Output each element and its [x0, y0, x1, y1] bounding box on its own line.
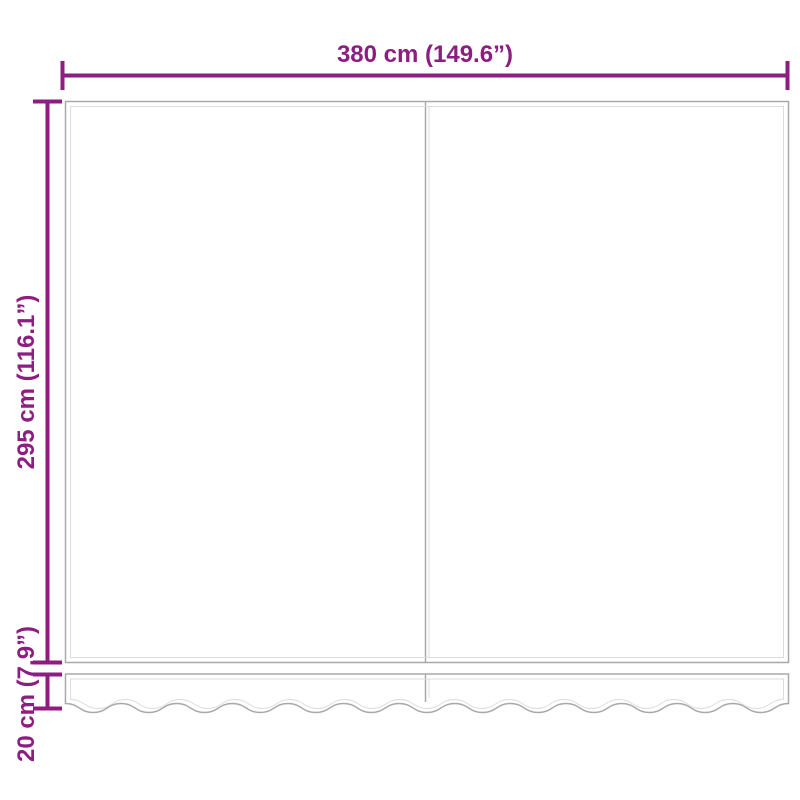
diagram-canvas: 380 cm (149.6”) 295 cm (116.1”) 20 cm (7… — [0, 0, 800, 800]
awning-fabric-dimension-diagram: 380 cm (149.6”) 295 cm (116.1”) 20 cm (7… — [0, 0, 800, 800]
fabric-panel — [66, 102, 789, 663]
valance-outline — [65, 674, 788, 713]
dimension-lines — [33, 61, 788, 709]
width-dimension-label: 380 cm (149.6”) — [337, 41, 513, 68]
fabric-panel-inner-stitch — [71, 107, 784, 658]
fabric-outlines-outer — [65, 102, 788, 713]
fabric-outlines-inner — [71, 107, 784, 709]
height-dimension-label: 295 cm (116.1”) — [13, 295, 40, 470]
dimension-labels: 380 cm (149.6”) 295 cm (116.1”) 20 cm (7… — [13, 41, 513, 762]
valance-dimension-label: 20 cm (7.9”) — [13, 626, 40, 762]
